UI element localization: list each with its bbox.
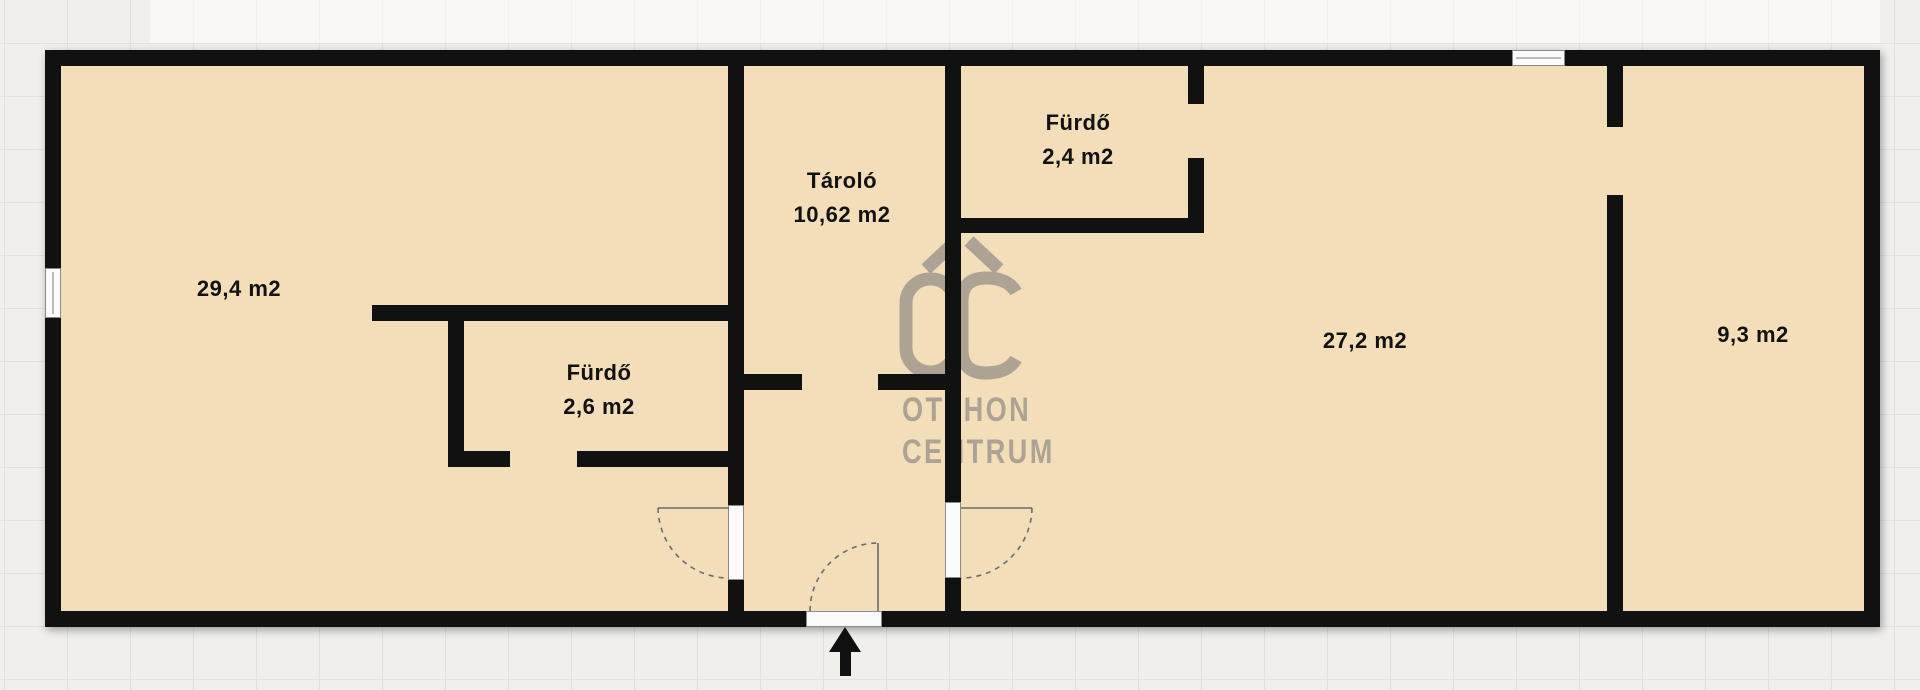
room-label-bathroom-left: Fürdő 2,6 m2 [563, 356, 635, 424]
door-arc-entrance [810, 543, 878, 611]
storage-name: Tároló [794, 164, 891, 198]
storage-area: 10,62 m2 [794, 198, 891, 232]
door-arc-right [961, 508, 1032, 578]
floor-plan-page: { "document": { "type": "floor-plan", "l… [0, 0, 1920, 690]
room-label-far-right: 9,3 m2 [1717, 318, 1789, 352]
bathroom-right-name: Fürdő [1042, 106, 1114, 140]
room-label-storage: Tároló 10,62 m2 [794, 164, 891, 232]
room-label-bathroom-right: Fürdő 2,4 m2 [1042, 106, 1114, 174]
bathroom-left-area: 2,6 m2 [563, 390, 635, 424]
room-label-left: 29,4 m2 [197, 272, 281, 306]
room-label-center-right: 27,2 m2 [1323, 324, 1407, 358]
door-arc-left [658, 508, 729, 578]
bathroom-right-area: 2,4 m2 [1042, 140, 1114, 174]
door-swing-overlay [0, 0, 1920, 690]
entrance-arrow-icon [829, 627, 861, 676]
bathroom-left-name: Fürdő [563, 356, 635, 390]
